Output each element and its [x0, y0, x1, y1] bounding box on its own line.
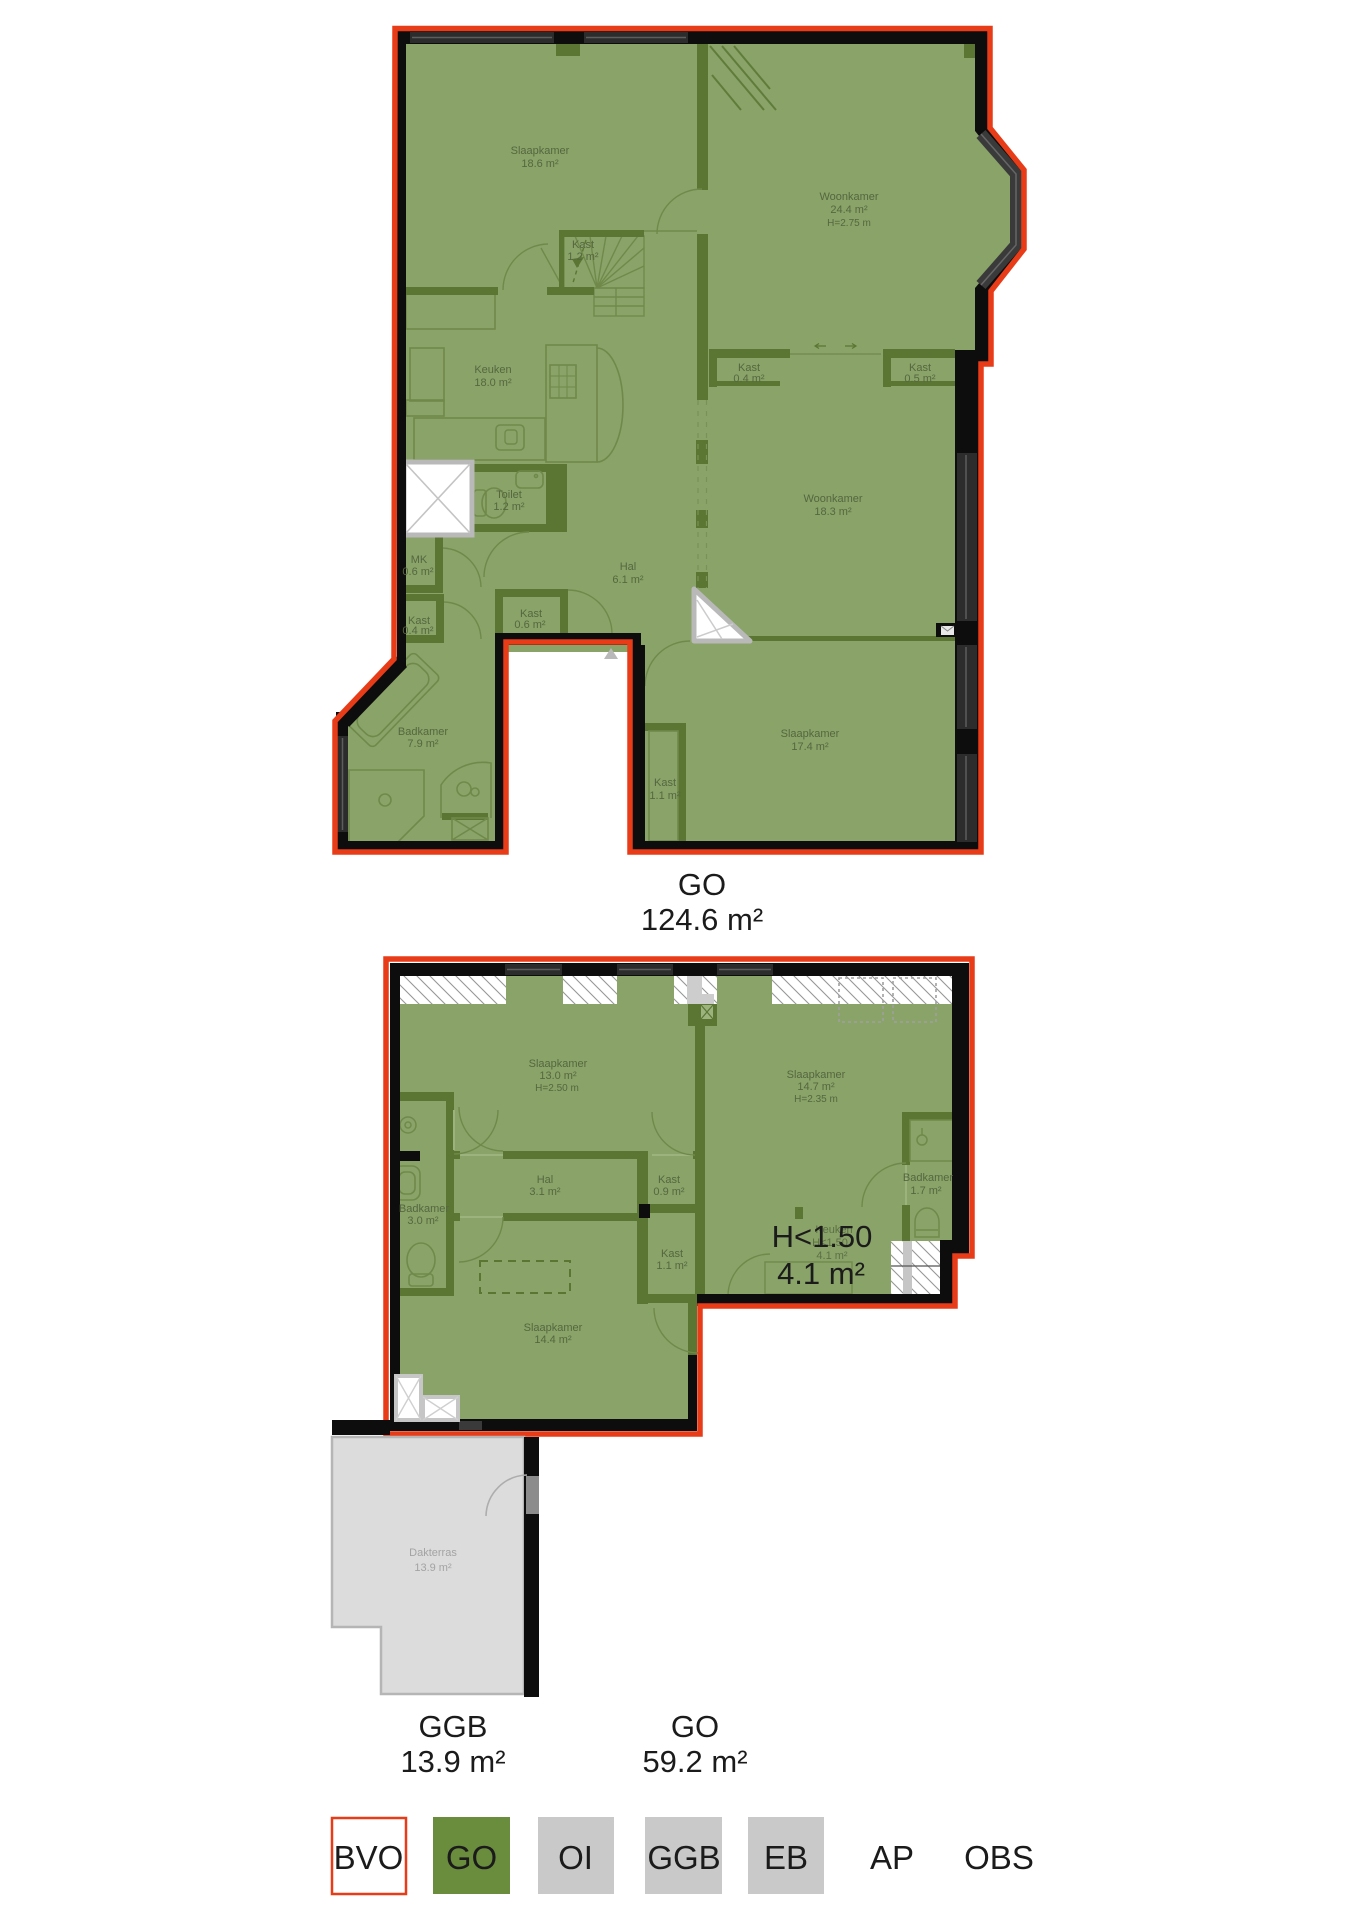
svg-text:H=2.35 m: H=2.35 m	[794, 1094, 838, 1105]
svg-text:OI: OI	[558, 1839, 593, 1876]
svg-text:0.4 m²: 0.4 m²	[402, 625, 434, 637]
svg-text:Woonkamer: Woonkamer	[819, 191, 878, 203]
svg-text:BVO: BVO	[334, 1839, 404, 1876]
svg-text:Hal: Hal	[537, 1174, 554, 1186]
svg-text:OBS: OBS	[964, 1839, 1034, 1876]
svg-text:14.7 m²: 14.7 m²	[797, 1081, 835, 1093]
svg-text:0.5 m²: 0.5 m²	[904, 373, 936, 385]
svg-text:Keuken: Keuken	[474, 364, 511, 376]
svg-text:Hal: Hal	[620, 561, 637, 573]
svg-text:7.9 m²: 7.9 m²	[407, 738, 439, 750]
svg-text:GO: GO	[671, 1709, 719, 1744]
svg-text:GGB: GGB	[419, 1709, 488, 1744]
svg-text:0.4 m²: 0.4 m²	[733, 373, 765, 385]
svg-text:Kast: Kast	[658, 1174, 680, 1186]
svg-text:EB: EB	[764, 1839, 808, 1876]
svg-text:GO: GO	[678, 867, 726, 902]
svg-text:0.6 m²: 0.6 m²	[514, 619, 546, 631]
svg-text:17.4 m²: 17.4 m²	[791, 741, 829, 753]
svg-text:13.9 m²: 13.9 m²	[414, 1562, 452, 1574]
svg-text:Badkamer: Badkamer	[398, 726, 448, 738]
svg-text:AP: AP	[870, 1839, 914, 1876]
svg-text:6.1 m²: 6.1 m²	[612, 574, 644, 586]
svg-text:Dakterras: Dakterras	[409, 1547, 457, 1559]
svg-text:1.1 m²: 1.1 m²	[656, 1260, 688, 1272]
svg-text:Slaapkamer: Slaapkamer	[511, 145, 570, 157]
svg-text:Slaapkamer: Slaapkamer	[787, 1069, 846, 1081]
svg-text:Toilet: Toilet	[496, 489, 522, 501]
svg-text:Badkamer: Badkamer	[399, 1203, 449, 1215]
svg-text:13.9 m²: 13.9 m²	[400, 1744, 505, 1779]
svg-text:Kast: Kast	[661, 1248, 683, 1260]
svg-text:1.2 m²: 1.2 m²	[493, 501, 525, 513]
svg-text:18.6 m²: 18.6 m²	[521, 158, 559, 170]
svg-text:18.0 m²: 18.0 m²	[474, 377, 512, 389]
svg-text:24.4 m²: 24.4 m²	[830, 204, 868, 216]
svg-text:Woonkamer: Woonkamer	[803, 493, 862, 505]
svg-text:3.0 m²: 3.0 m²	[407, 1215, 439, 1227]
svg-text:Slaapkamer: Slaapkamer	[529, 1058, 588, 1070]
svg-text:MK: MK	[411, 554, 428, 566]
svg-text:3.1 m²: 3.1 m²	[529, 1186, 561, 1198]
svg-text:Slaapkamer: Slaapkamer	[524, 1322, 583, 1334]
svg-text:4.1 m²: 4.1 m²	[777, 1256, 865, 1291]
svg-text:H<1.50: H<1.50	[772, 1219, 873, 1254]
svg-text:0.9 m²: 0.9 m²	[653, 1186, 685, 1198]
svg-text:GGB: GGB	[647, 1839, 720, 1876]
svg-text:Badkamer: Badkamer	[903, 1172, 953, 1184]
svg-text:1.7 m²: 1.7 m²	[910, 1185, 942, 1197]
svg-text:GO: GO	[446, 1839, 497, 1876]
svg-text:Kast: Kast	[654, 777, 676, 789]
svg-text:1.1 m²: 1.1 m²	[649, 790, 681, 802]
svg-text:Slaapkamer: Slaapkamer	[781, 728, 840, 740]
svg-text:124.6 m²: 124.6 m²	[641, 902, 763, 937]
svg-text:0.6 m²: 0.6 m²	[402, 566, 434, 578]
svg-text:H=2.75 m: H=2.75 m	[827, 218, 871, 229]
svg-text:59.2 m²: 59.2 m²	[642, 1744, 747, 1779]
svg-text:1.2 m²: 1.2 m²	[567, 251, 599, 263]
svg-text:H=2.50 m: H=2.50 m	[535, 1083, 579, 1094]
svg-text:18.3 m²: 18.3 m²	[814, 506, 852, 518]
svg-text:14.4 m²: 14.4 m²	[534, 1334, 572, 1346]
svg-text:Kast: Kast	[572, 239, 594, 251]
svg-text:13.0 m²: 13.0 m²	[539, 1070, 577, 1082]
